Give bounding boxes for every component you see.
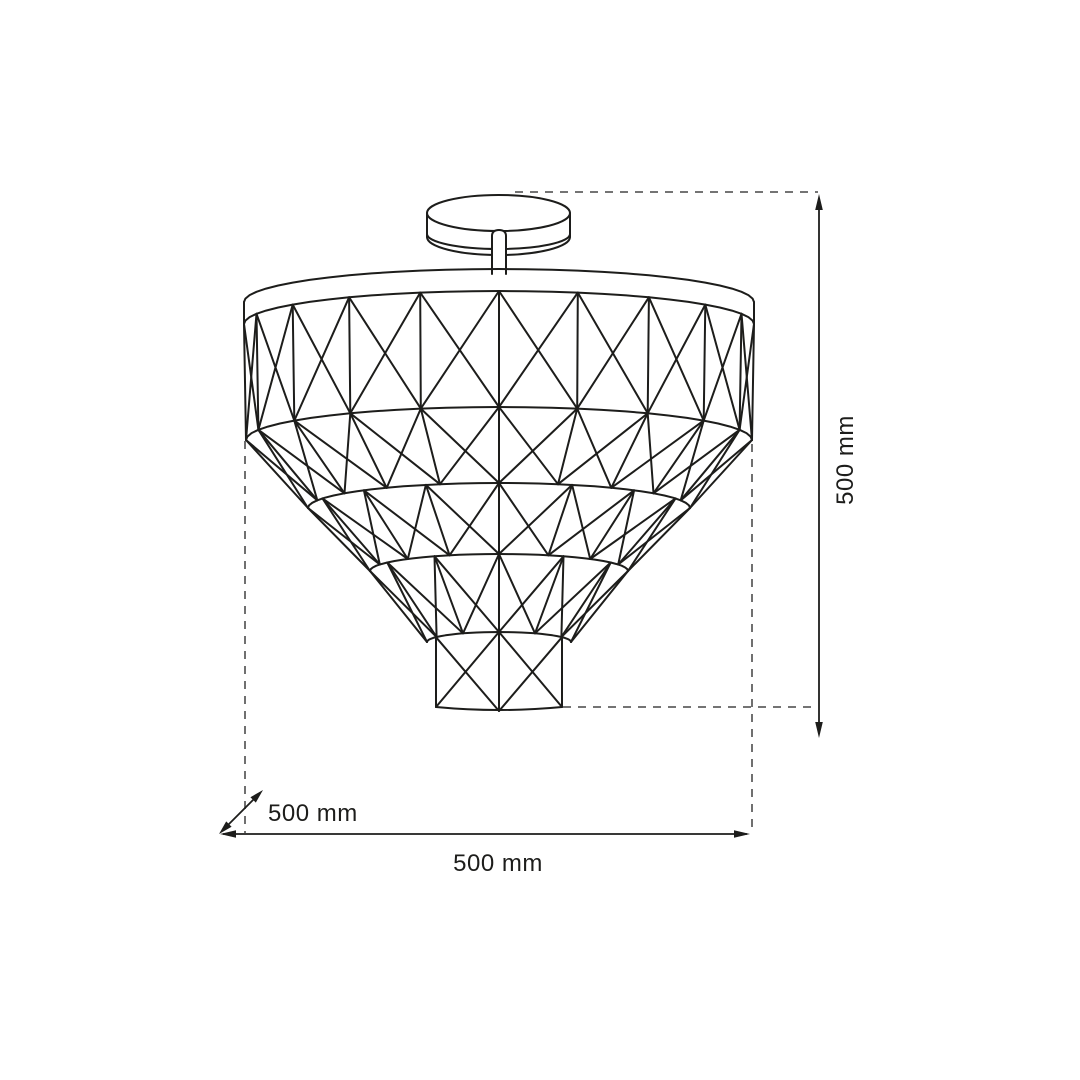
canopy-top-face: [427, 195, 570, 231]
arrow-right-icon: [734, 830, 750, 838]
arrow-up-icon: [815, 194, 823, 210]
lamp-line-art: [244, 195, 754, 711]
width-dimension: 500 mm: [220, 830, 750, 877]
width-dimension-label: 500 mm: [453, 850, 543, 877]
technical-drawing-canvas: 500 mm 500 mm 500 mm: [0, 0, 1080, 1080]
crystal-shade: [244, 269, 754, 642]
dimension-annotations: 500 mm 500 mm 500 mm: [219, 194, 859, 877]
drawing-stage: 500 mm 500 mm 500 mm: [0, 0, 1080, 1080]
bottom-finial-box: [436, 632, 562, 711]
stem-rod: [492, 230, 506, 274]
depth-dimension: 500 mm: [219, 790, 358, 834]
height-dimension: 500 mm: [815, 194, 859, 738]
height-dimension-label: 500 mm: [832, 415, 859, 505]
depth-dimension-label: 500 mm: [268, 800, 358, 827]
arrow-down-icon: [815, 722, 823, 738]
